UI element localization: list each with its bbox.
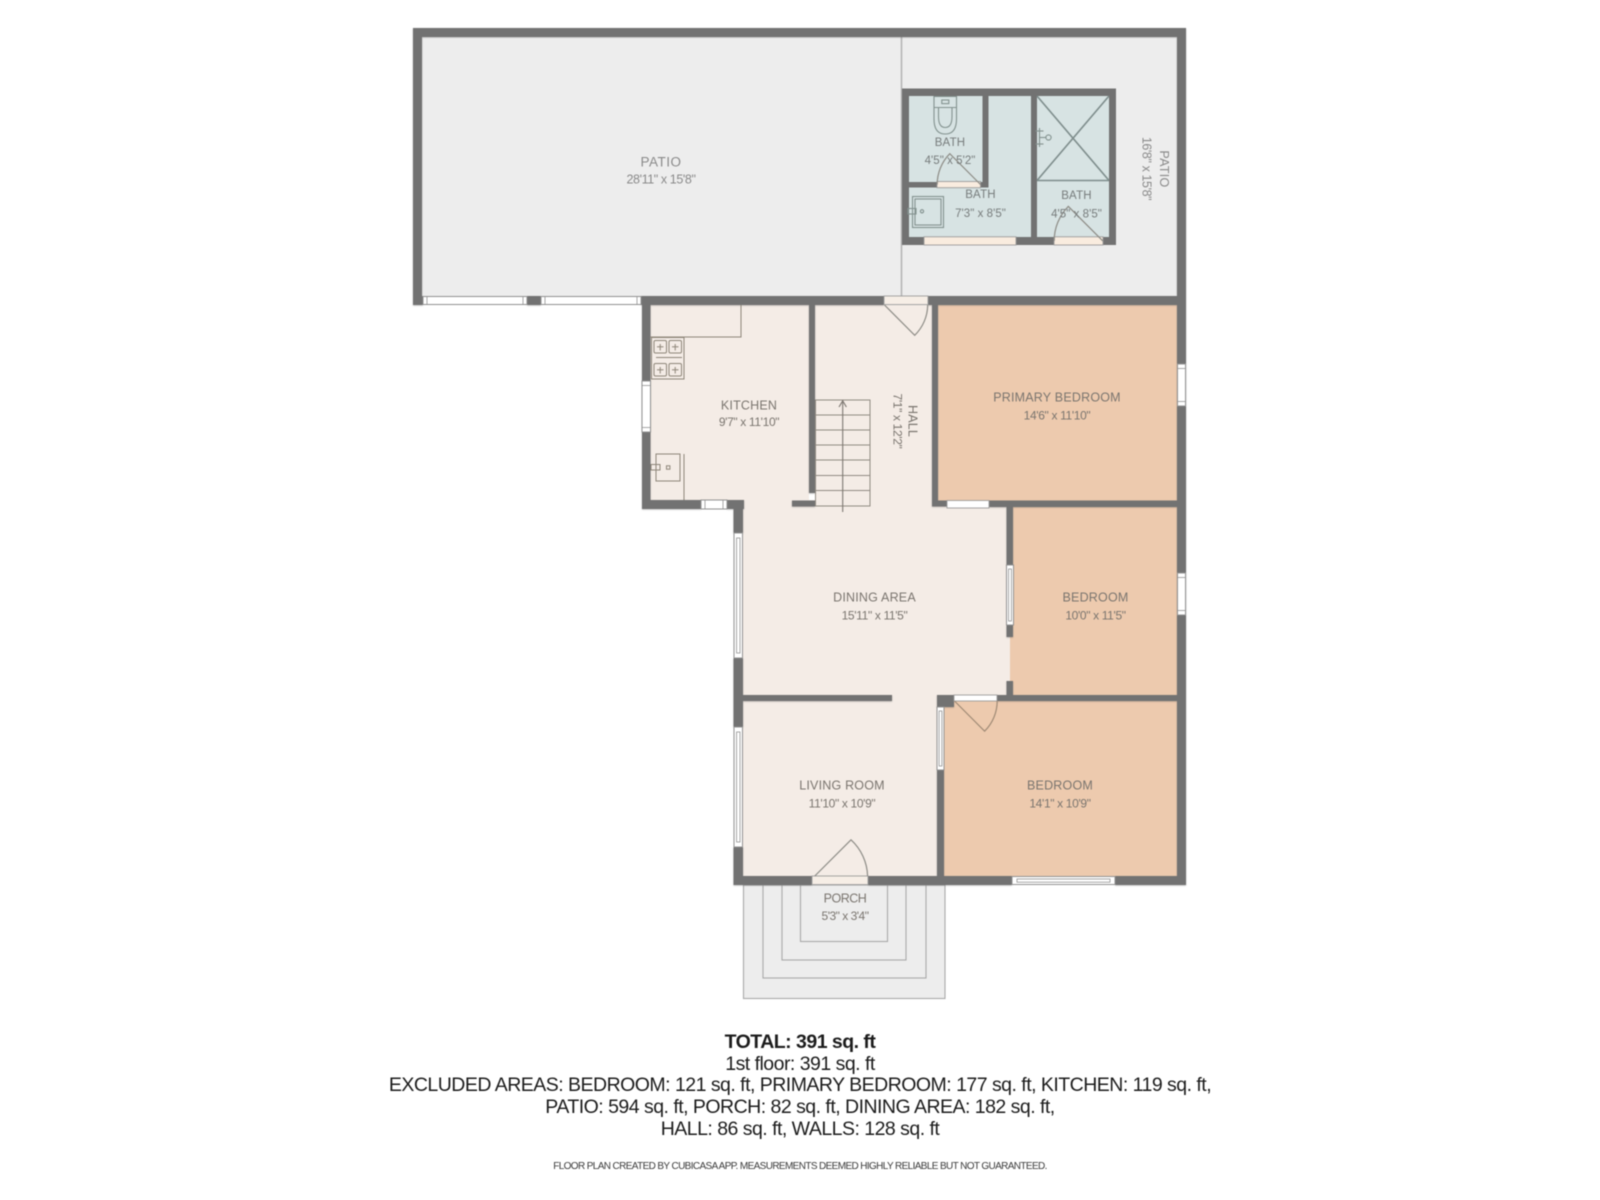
svg-text:PRIMARY BEDROOM: PRIMARY BEDROOM [993, 391, 1121, 405]
svg-text:4'5" x 5'2": 4'5" x 5'2" [925, 155, 976, 167]
svg-text:10'0" x 11'5": 10'0" x 11'5" [1065, 608, 1125, 622]
svg-text:7'3" x 8'5": 7'3" x 8'5" [955, 208, 1006, 220]
svg-text:7'1" x 12'2": 7'1" x 12'2" [891, 394, 905, 449]
svg-text:14'1" x 10'9": 14'1" x 10'9" [1029, 796, 1090, 810]
svg-text:15'11" x 11'5": 15'11" x 11'5" [842, 608, 908, 622]
svg-text:KITCHEN: KITCHEN [721, 399, 777, 413]
svg-text:14'6" x 11'10": 14'6" x 11'10" [1024, 408, 1091, 422]
svg-text:4'5" x 8'5": 4'5" x 8'5" [1051, 209, 1102, 221]
svg-text:LIVING ROOM: LIVING ROOM [799, 779, 885, 793]
svg-text:BATH: BATH [965, 189, 996, 201]
svg-text:PATIO: PATIO [640, 154, 681, 169]
svg-text:5'3" x 3'4": 5'3" x 3'4" [822, 909, 869, 923]
svg-text:DINING AREA: DINING AREA [833, 591, 916, 605]
svg-text:BATH: BATH [935, 137, 966, 149]
svg-text:PATIO: PATIO [1157, 150, 1171, 187]
svg-text:BATH: BATH [1061, 190, 1092, 202]
svg-text:HALL: HALL [906, 405, 920, 437]
svg-text:9'7" x 11'10": 9'7" x 11'10" [719, 415, 779, 429]
svg-text:BEDROOM: BEDROOM [1027, 779, 1093, 793]
svg-text:28'11" x 15'8": 28'11" x 15'8" [627, 173, 696, 187]
svg-text:16'8" x 15'8": 16'8" x 15'8" [1140, 137, 1154, 200]
svg-text:PORCH: PORCH [824, 892, 867, 906]
svg-text:BEDROOM: BEDROOM [1063, 591, 1129, 605]
svg-text:11'10" x 10'9": 11'10" x 10'9" [809, 796, 876, 810]
